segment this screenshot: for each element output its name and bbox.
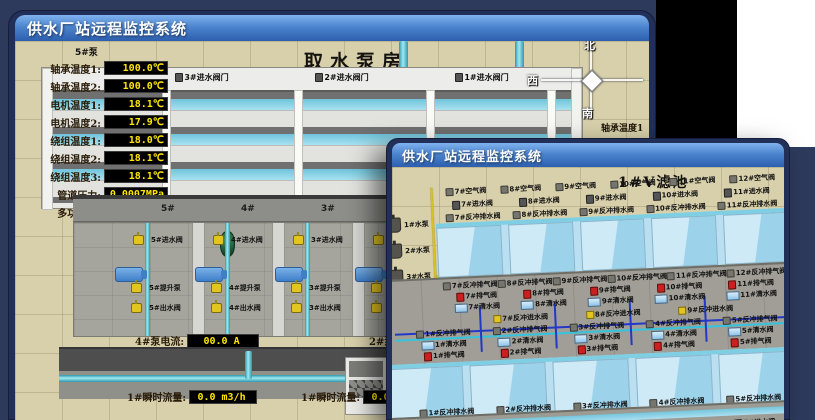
flow1-label: 1#瞬时流量: — [127, 389, 189, 404]
readout-value: 18.0℃ — [104, 133, 168, 147]
exhaust-valve-label: 5#排气阀 — [740, 336, 772, 347]
backwash-inlet-valve-icon — [493, 315, 501, 323]
compass: 北 西 南 — [527, 41, 649, 121]
intake-gate-valve[interactable]: 2#进水阀门 — [315, 72, 368, 83]
clear-water-valve-icon — [421, 341, 434, 351]
desktop: 供水厂站远程监控系统 取水泵房 3#进水阀门2#进水阀门1#进水阀门 — [0, 0, 815, 420]
clear-water-valve-label: 3#清水阀 — [588, 332, 620, 343]
inlet-valve-label: 11#进水阀 — [733, 186, 770, 198]
pump4-current-value: 00.0 A — [187, 334, 259, 348]
clear-water-valve[interactable]: 5#清水阀 — [728, 325, 774, 337]
background-black-panel — [656, 0, 737, 147]
outlet-valve-label: 5#出水阀 — [149, 303, 181, 313]
intake-gate-valve[interactable]: 3#进水阀门 — [175, 72, 228, 83]
front-window-title: 供水厂站远程监控系统 — [402, 146, 542, 165]
bay-pipe — [305, 223, 310, 336]
inlet-valve-label: 5#进水阀 — [743, 417, 775, 420]
exhaust-valve-label: 9#排气阀 — [599, 284, 631, 295]
lift-pump-label: 3#提升泵 — [309, 283, 341, 293]
exhaust-valve[interactable]: 11#排气阀 — [728, 278, 774, 290]
inlet-valve[interactable] — [133, 235, 144, 245]
air-valve[interactable]: 9#空气阀 — [555, 181, 596, 193]
clear-water-valve-label: 1#清水阀 — [435, 339, 467, 350]
bay-pipe — [225, 223, 230, 336]
backwash-air-valve-label: 1#反冲排气阀 — [425, 327, 471, 339]
exhaust-valve-icon — [590, 286, 598, 295]
pump-bay: 3#进水阀3#提升泵3#出水阀 — [267, 223, 347, 336]
backwash-air-valve-icon — [498, 280, 506, 288]
air-valve-label: 8#空气阀 — [509, 183, 541, 194]
inlet-valve-icon — [724, 188, 732, 197]
exhaust-valve[interactable]: 3#排气阀 — [577, 343, 618, 355]
backwash-air-valve-icon — [569, 324, 577, 332]
backwash-air-valve-icon — [607, 275, 615, 283]
filter-cell — [508, 222, 575, 275]
clear-water-valve-icon — [588, 297, 601, 307]
air-valve-icon — [610, 181, 618, 189]
backwash-drain-valve-icon — [579, 208, 587, 216]
air-valve-icon — [729, 175, 737, 183]
clear-water-valve-icon — [521, 300, 534, 310]
inlet-valve-label: 7#进水阀 — [461, 198, 493, 209]
clear-water-valve[interactable]: 8#清水阀 — [521, 298, 567, 310]
front-window-titlebar[interactable]: 供水厂站远程监控系统 — [392, 143, 784, 167]
air-valve-label: 10#空气阀 — [619, 178, 656, 190]
inlet-valve-icon — [586, 194, 594, 203]
backwash-air-valve-icon — [727, 269, 735, 277]
clear-water-valve-label: 2#清水阀 — [511, 335, 543, 346]
pump-valve[interactable] — [211, 283, 222, 293]
backwash-drain-valve-icon — [512, 211, 520, 219]
pump5-label: 5#泵 — [75, 45, 98, 58]
air-valve[interactable]: 8#空气阀 — [500, 183, 541, 195]
inlet-valve[interactable]: 7#进水阀 — [452, 198, 493, 210]
clear-water-valve[interactable]: 1#清水阀 — [421, 339, 467, 351]
water-pump[interactable]: 1#水泵 — [392, 212, 437, 240]
clear-water-valve-icon — [726, 291, 739, 301]
exhaust-valve-label: 11#排气阀 — [737, 278, 774, 290]
backwash-air-valve-label: 7#反冲排气阀 — [452, 279, 498, 291]
exhaust-valve-label: 3#排气阀 — [586, 343, 618, 354]
filter-cell — [723, 212, 784, 265]
exhaust-valve-icon — [577, 345, 585, 354]
inlet-valve[interactable] — [373, 235, 384, 245]
background-white-corner — [737, 0, 815, 147]
exhaust-valve[interactable]: 4#排气阀 — [654, 339, 695, 351]
inlet-valve[interactable]: 11#进水阀 — [724, 186, 770, 198]
exhaust-valve-label: 1#排气阀 — [433, 350, 465, 361]
bay-number: 3# — [321, 204, 335, 214]
exhaust-valve-icon — [728, 280, 736, 289]
air-valve-label: 7#空气阀 — [454, 185, 486, 196]
clear-water-valve-icon — [574, 334, 587, 344]
bay-number: 5# — [161, 204, 175, 214]
exhaust-valve-label: 2#排气阀 — [509, 346, 541, 357]
pump4-current-label: 4#泵电流: — [135, 333, 187, 348]
readout-row: 电机温度1:18.1℃ — [17, 97, 168, 111]
outlet-valve[interactable] — [371, 303, 382, 313]
readout-value: 100.0℃ — [104, 79, 168, 93]
filter-cell — [651, 215, 718, 268]
readout-label: 电机温度2: — [17, 115, 104, 130]
air-valve-label: 11#空气阀 — [679, 175, 716, 187]
clear-water-valve[interactable]: 9#清水阀 — [588, 295, 634, 307]
clear-water-valve[interactable]: 7#清水阀 — [454, 301, 500, 313]
inlet-valve[interactable]: 10#进水阀 — [652, 189, 698, 201]
readout-value: 100.0℃ — [104, 61, 168, 75]
readout-label: 绕组温度3: — [17, 169, 104, 184]
intake-gate-valve-label: 1#进水阀门 — [464, 72, 508, 83]
back-window-titlebar[interactable]: 供水厂站远程监控系统 — [15, 15, 649, 41]
backwash-drain-valve-icon — [446, 214, 454, 222]
clear-water-valve-icon — [728, 327, 741, 337]
intake-valve-row: 3#进水阀门2#进水阀门1#进水阀门 — [132, 72, 552, 83]
readout-label: 电机温度1: — [17, 97, 104, 112]
readout-value: 18.1℃ — [104, 97, 168, 111]
exhaust-valve[interactable]: 9#排气阀 — [590, 284, 631, 296]
clear-water-valve[interactable]: 4#清水阀 — [651, 328, 697, 340]
readout-label: 轴承温度1: — [17, 61, 104, 76]
lift-pump[interactable] — [275, 267, 303, 282]
backwash-air-valve-label: 3#反冲排气阀 — [578, 320, 624, 332]
readout-row: 轴承温度2:100.0℃ — [17, 79, 168, 93]
backwash-inlet-valve-icon — [586, 311, 594, 319]
air-valve-icon — [670, 178, 678, 186]
air-valve[interactable]: 10#空气阀 — [610, 178, 656, 190]
clear-water-valve-label: 11#清水阀 — [740, 288, 777, 300]
clear-water-valve-icon — [654, 294, 667, 304]
lift-pump[interactable] — [355, 267, 383, 282]
exhaust-valve-icon — [654, 341, 662, 350]
clear-water-valve-label: 7#清水阀 — [468, 301, 500, 312]
exhaust-valve-label: 10#排气阀 — [665, 281, 702, 293]
outlet-valve[interactable] — [131, 303, 142, 313]
clear-water-valve-icon — [651, 330, 664, 340]
exhaust-valve[interactable]: 7#排气阀 — [456, 290, 497, 302]
inlet-valve-label: 10#进水阀 — [661, 189, 698, 201]
intake-gate-valve-icon — [315, 73, 323, 82]
bay-pipe — [145, 223, 150, 336]
air-valve-icon — [555, 183, 563, 191]
pump-bay: 4#进水阀4#提升泵4#出水阀 — [187, 223, 267, 336]
inlet-valve[interactable] — [293, 235, 304, 245]
back-window-title: 供水厂站远程监控系统 — [27, 18, 187, 39]
exhaust-valve[interactable]: 2#排气阀 — [500, 346, 541, 358]
inlet-valve-icon — [652, 191, 660, 200]
exhaust-valve[interactable]: 8#排气阀 — [523, 287, 564, 299]
intake-gate-valve-icon — [455, 73, 463, 82]
clear-water-valve-label: 8#清水阀 — [535, 298, 567, 309]
lift-pump[interactable] — [115, 267, 143, 282]
partial-bearing-temp-1: 轴承温度1 — [601, 121, 649, 134]
readout-row: 轴承温度1:100.0℃ — [17, 61, 168, 75]
inlet-valve-label: 4#进水阀 — [231, 235, 263, 245]
filter-cell — [436, 225, 503, 278]
clear-water-valve[interactable]: 2#清水阀 — [497, 335, 543, 347]
flow-meter-cabinet — [345, 357, 387, 415]
pump-bay: 5#进水阀5#提升泵5#出水阀 — [107, 223, 187, 336]
unit-label: 1#水泵 — [404, 219, 429, 230]
pump-valve[interactable] — [371, 283, 382, 293]
readout-row: 绕组温度2:18.1℃ — [17, 151, 168, 165]
inlet-valve-label: 8#进水阀 — [528, 195, 560, 206]
outlet-valve-label: 4#出水阀 — [229, 303, 261, 313]
backwash-air-valve-icon — [493, 327, 501, 335]
filter-cell — [580, 218, 647, 271]
exhaust-valve-icon — [656, 283, 664, 292]
inlet-valve-label: 3#进水阀 — [311, 235, 343, 245]
backwash-air-valve-icon — [723, 317, 731, 325]
water-pump[interactable]: 2#水泵 — [392, 238, 438, 266]
pump-valve[interactable] — [291, 283, 302, 293]
outlet-valve-label: 3#出水阀 — [309, 303, 341, 313]
pump-icon — [392, 243, 403, 259]
inlet-valve-label: 9#进水阀 — [595, 192, 627, 203]
exhaust-valve[interactable]: 5#排气阀 — [731, 336, 772, 348]
outlet-valve[interactable] — [291, 303, 302, 313]
compass-west: 西 — [527, 72, 538, 88]
air-valve[interactable]: 12#空气阀 — [729, 172, 775, 184]
pump-icon — [392, 217, 401, 233]
exhaust-valve-label: 7#排气阀 — [465, 290, 497, 301]
backwash-drain-valve-icon — [646, 205, 654, 213]
outlet-valve[interactable] — [211, 303, 222, 313]
backwash-air-valve-icon — [646, 320, 654, 328]
filter-pool-window: 供水厂站远程监控系统 1#V滤池 1#水泵2#水泵3#水泵1#风机2#风机3#风… — [386, 138, 790, 420]
backwash-inlet-valve-icon — [678, 307, 686, 315]
clear-water-valve-label: 5#清水阀 — [742, 325, 774, 336]
backwash-air-valve-icon — [552, 277, 560, 285]
pump4-current-readout: 4#泵电流: 00.0 A — [135, 333, 259, 348]
intake-gate-valve-label: 2#进水阀门 — [324, 72, 368, 83]
exhaust-valve[interactable]: 1#排气阀 — [424, 350, 465, 362]
bay-number: 4# — [241, 204, 255, 214]
exhaust-valve-icon — [501, 348, 509, 357]
clear-water-valve-label: 10#清水阀 — [668, 292, 705, 304]
air-valve[interactable]: 7#空气阀 — [445, 185, 486, 197]
readout-label: 轴承温度2: — [17, 79, 104, 94]
inlet-valve[interactable] — [213, 235, 224, 245]
inlet-valve-icon — [452, 200, 460, 209]
readout-value: 18.1℃ — [104, 151, 168, 165]
readout-value: 18.1℃ — [104, 169, 168, 183]
filter-grid: 1#水泵2#水泵3#水泵1#风机2#风机3#风机 7#空气阀8#空气阀9#空气阀… — [392, 170, 784, 420]
exhaust-valve[interactable]: 10#排气阀 — [656, 281, 702, 293]
intake-gate-valve-label: 3#进水阀门 — [184, 72, 228, 83]
backwash-air-valve-icon — [416, 330, 424, 338]
lift-pump-label: 5#提升泵 — [149, 283, 181, 293]
pump-valve[interactable] — [131, 283, 142, 293]
intake-gate-valve[interactable]: 1#进水阀门 — [455, 72, 508, 83]
backwash-inlet-valve-label: 8#反冲进水阀 — [595, 308, 641, 320]
clear-water-valve-icon — [454, 303, 467, 313]
backwash-air-valve-label: 4#反冲排气阀 — [655, 317, 701, 329]
exhaust-valve-label: 8#排气阀 — [532, 287, 564, 298]
readout-row: 绕组温度1:18.0℃ — [17, 133, 168, 147]
inlet-valve[interactable]: 8#进水阀 — [519, 195, 560, 207]
flow-readout-1: 1#瞬时流量: 0.0 m3/h — [127, 389, 257, 404]
flow2-label: 1#瞬时流量: — [301, 389, 363, 404]
exhaust-valve-label: 4#排气阀 — [663, 339, 695, 350]
unit-label: 2#水泵 — [405, 245, 430, 256]
clear-water-valve[interactable]: 3#清水阀 — [574, 332, 620, 344]
readout-row: 绕组温度3:18.1℃ — [17, 169, 168, 183]
readout-label: 绕组温度2: — [17, 151, 104, 166]
exhaust-valve-icon — [424, 352, 432, 361]
compass-south: 南 — [582, 105, 593, 121]
backwash-air-valve-icon — [667, 272, 675, 280]
backwash-inlet-valve-label: 7#反冲进水阀 — [502, 312, 548, 324]
compass-north: 北 — [584, 41, 595, 53]
exhaust-valve-icon — [523, 289, 531, 298]
compass-star-icon — [581, 70, 604, 93]
air-valve-icon — [500, 185, 508, 193]
backwash-air-valve-label: 5#反冲排气阀 — [732, 313, 778, 325]
backwash-air-valve-label: 9#反冲排气阀 — [561, 274, 607, 286]
backwash-air-valve-label: 2#反冲排气阀 — [501, 324, 547, 336]
backwash-drain-valve-icon — [718, 202, 726, 210]
clear-water-valve-label: 4#清水阀 — [665, 328, 697, 339]
air-valve-label: 9#空气阀 — [564, 181, 596, 192]
backwash-air-valve-label: 8#反冲排气阀 — [506, 277, 552, 289]
clear-water-valve-label: 9#清水阀 — [602, 295, 634, 306]
readout-value: 17.9℃ — [104, 115, 168, 129]
readout-row: 电机温度2:17.9℃ — [17, 115, 168, 129]
intake-pillar — [294, 90, 303, 202]
backwash-inlet-valve-label: 9#反冲进水阀 — [687, 303, 733, 315]
air-valve-label: 12#空气阀 — [738, 172, 775, 184]
lift-pump[interactable] — [195, 267, 223, 282]
lift-pump-label: 4#提升泵 — [229, 283, 261, 293]
inlet-valve[interactable]: 9#进水阀 — [586, 192, 627, 204]
readout-label: 绕组温度1: — [17, 133, 104, 148]
air-valve-icon — [445, 188, 453, 196]
exhaust-valve-icon — [456, 292, 464, 301]
inlet-valve-icon — [519, 197, 527, 206]
inlet-valve-label: 5#进水阀 — [151, 235, 183, 245]
air-valve[interactable]: 11#空气阀 — [670, 175, 716, 187]
pipe-stub — [245, 351, 252, 379]
intake-gate-valve-icon — [175, 73, 183, 82]
filter-pool-scene: 1#V滤池 1#水泵2#水泵3#水泵1#风机2#风机3#风机 7#空气阀8#空气… — [392, 167, 784, 420]
backwash-air-valve-icon — [443, 282, 451, 290]
exhaust-valve-icon — [731, 338, 739, 347]
clear-water-valve-icon — [498, 337, 511, 347]
flow1-value: 0.0 m3/h — [189, 390, 257, 404]
